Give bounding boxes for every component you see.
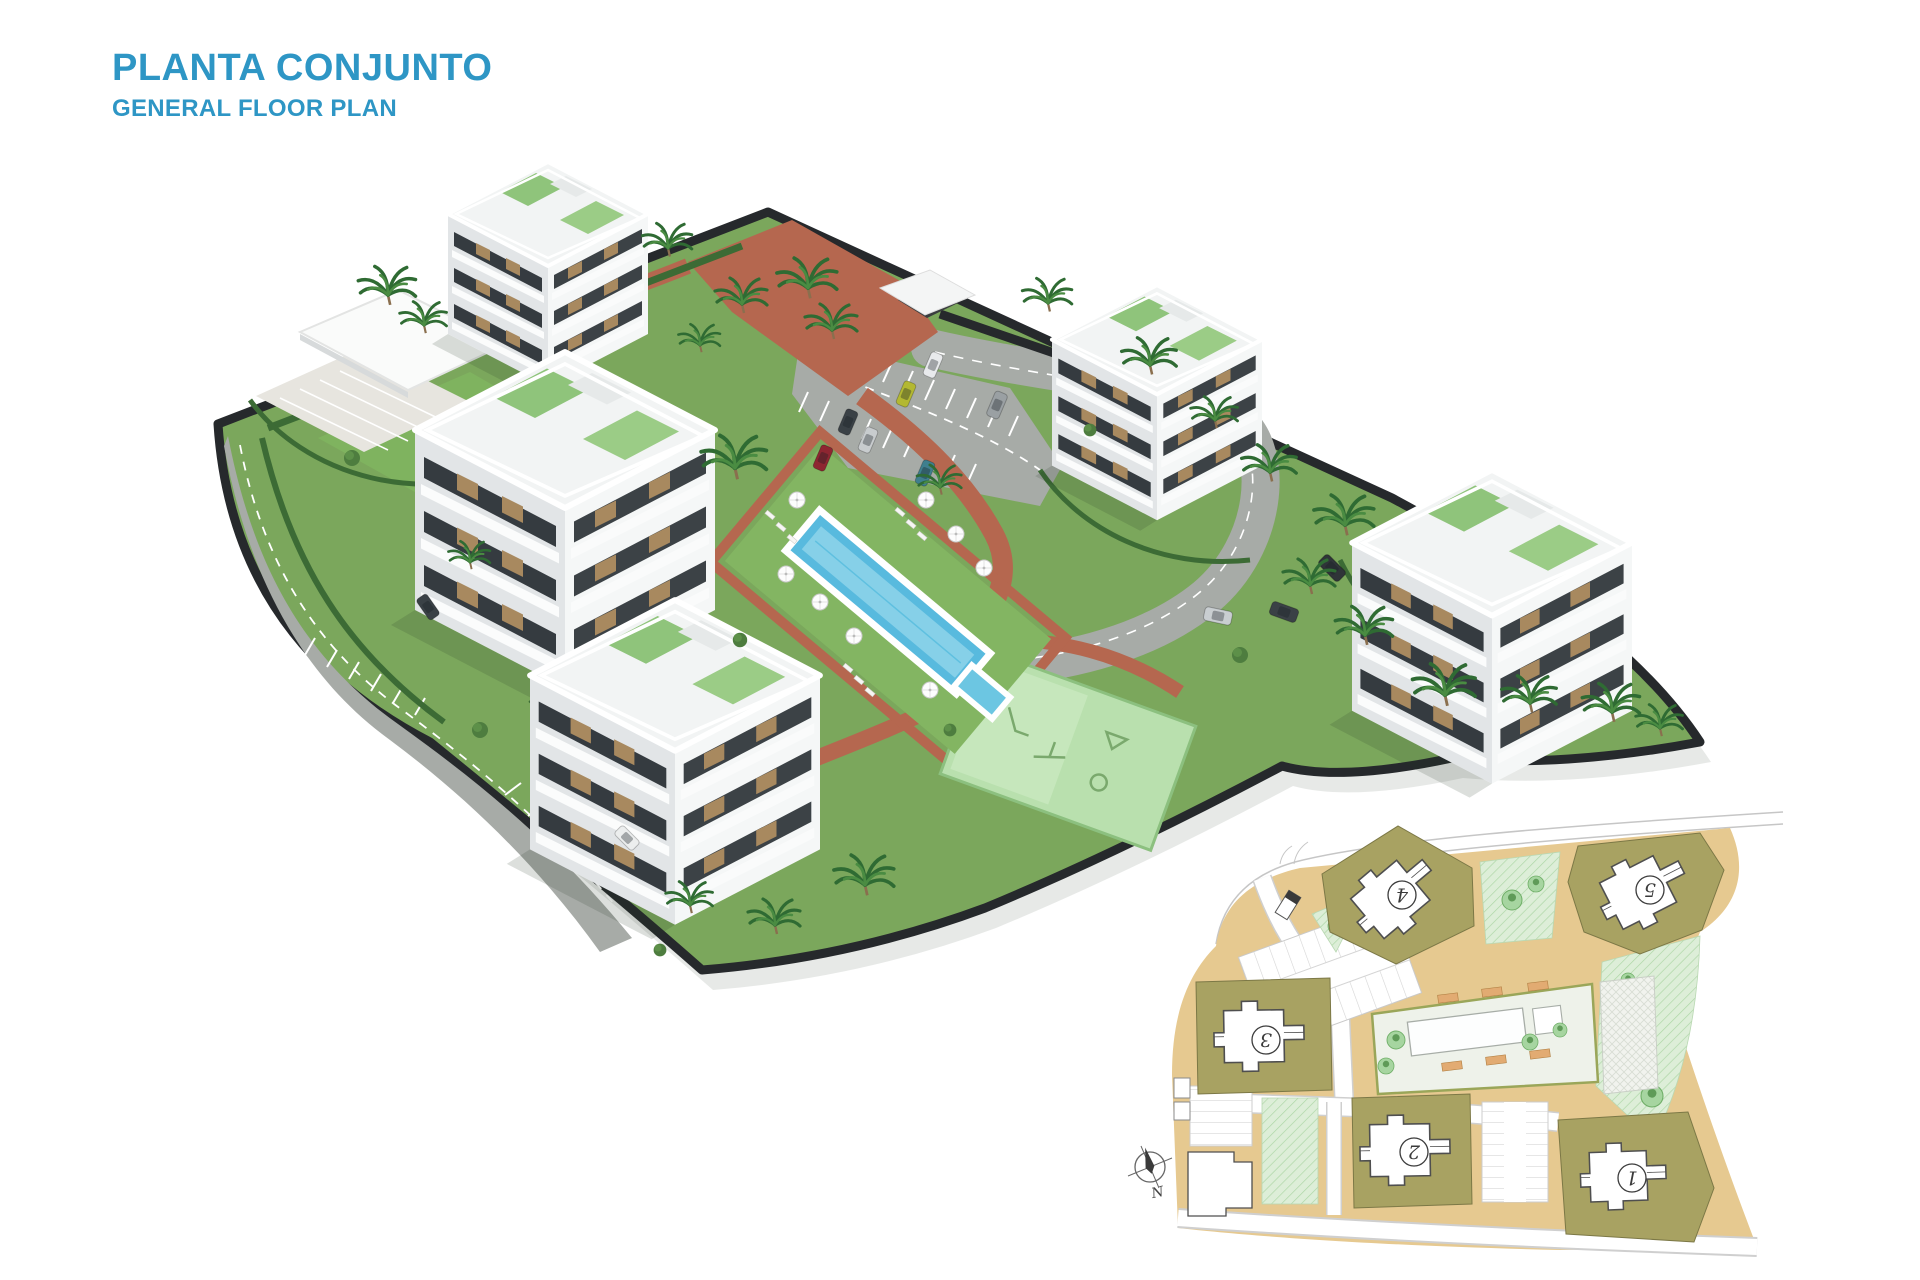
umbrella-icon — [789, 492, 805, 508]
building-4-badge: 4 — [1388, 881, 1416, 909]
north-arrow-icon: N — [1128, 1146, 1172, 1202]
site-plan-scene: 4 5 3 2 1 N — [0, 0, 1920, 1280]
umbrella-icon — [922, 682, 938, 698]
umbrella-icon — [846, 628, 862, 644]
building-2-number: 2 — [1408, 1140, 1421, 1162]
title-block: PLANTA CONJUNTO GENERAL FLOOR PLAN — [112, 48, 492, 124]
building-1-number: 1 — [1626, 1166, 1638, 1188]
site-plan-inset: 4 5 3 2 1 N — [1128, 812, 1783, 1250]
inset-parking-west — [1190, 1086, 1252, 1146]
umbrella-icon — [778, 566, 794, 582]
building-5-badge: 5 — [1636, 876, 1664, 904]
building-2-badge: 2 — [1400, 1138, 1428, 1166]
building-5-number: 5 — [1644, 878, 1656, 900]
north-label: N — [1149, 1184, 1166, 1203]
building-3-badge: 3 — [1252, 1026, 1280, 1054]
building-3-number: 3 — [1260, 1028, 1272, 1050]
brochure-page: 4 5 3 2 1 N PLANTA CONJUNTO GENERAL FLOO… — [0, 0, 1920, 1280]
umbrella-icon — [918, 492, 934, 508]
inset-parking-east — [1482, 1102, 1548, 1202]
building-1-badge: 1 — [1618, 1164, 1646, 1192]
page-title: PLANTA CONJUNTO — [112, 48, 492, 90]
inset-clubhouse-footprint — [1188, 1152, 1252, 1216]
building-4-number: 4 — [1396, 883, 1409, 905]
umbrella-icon — [948, 526, 964, 542]
page-subtitle: GENERAL FLOOR PLAN — [112, 95, 492, 124]
umbrella-icon — [976, 560, 992, 576]
umbrella-icon — [812, 594, 828, 610]
